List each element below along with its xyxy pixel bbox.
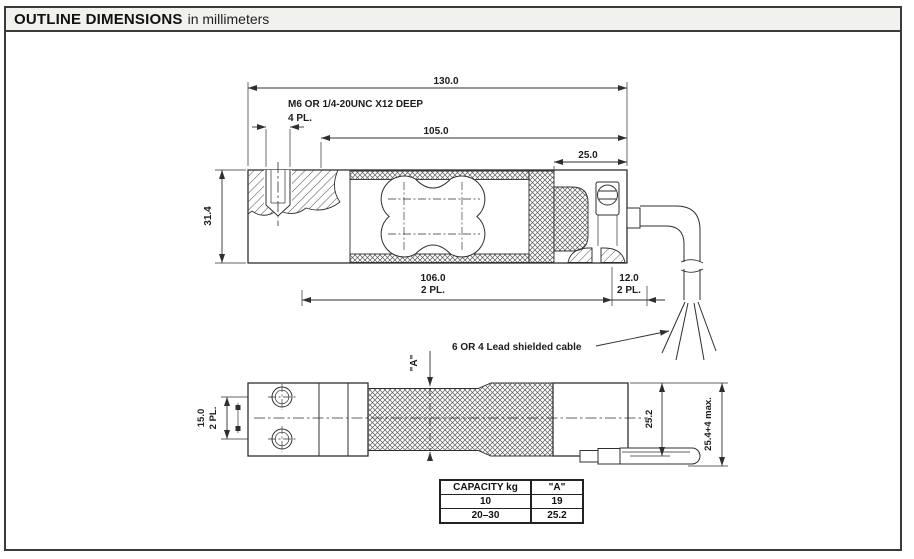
capacity-table: CAPACITY kg "A" 10 19 20–30 25.2 — [439, 479, 584, 524]
capacity-cell: 10 — [440, 495, 531, 509]
top-view: 130.0 M6 OR 1/4-20UNC X12 DEEP 4 PL. 105… — [203, 76, 716, 360]
dim-130-label: 130.0 — [433, 76, 458, 87]
a-cell: 19 — [531, 495, 583, 509]
dim-106-places: 2 PL. — [421, 285, 445, 296]
side-left-block — [248, 383, 368, 456]
dim-31-4-label: 31.4 — [203, 206, 214, 226]
dim-25-label: 25.0 — [578, 150, 598, 161]
dim-12-places: 2 PL. — [617, 285, 641, 296]
dim-105-label: 105.0 — [423, 126, 448, 137]
a-header: "A" — [531, 480, 583, 495]
dim-15-places: 2 PL. — [208, 407, 219, 430]
dim-12-label: 12.0 — [619, 273, 639, 284]
side-potted-section — [368, 383, 553, 456]
dim-106-label: 106.0 — [420, 273, 445, 284]
binocular-cutout — [381, 176, 485, 257]
dim-25-4-label: 25.4+4 max. — [703, 397, 714, 451]
dimension-106-and-12: 106.0 2 PL. 12.0 2 PL. — [302, 267, 665, 306]
dimension-25: 25.0 — [554, 150, 627, 171]
capacity-cell: 20–30 — [440, 509, 531, 524]
table-row: 10 19 — [440, 495, 583, 509]
thread-note-line1: M6 OR 1/4-20UNC X12 DEEP — [288, 99, 423, 110]
dim-a-label: "A" — [409, 354, 420, 371]
cable-note: 6 OR 4 Lead shielded cable — [452, 331, 669, 353]
table-header-row: CAPACITY kg "A" — [440, 480, 583, 495]
thread-note: M6 OR 1/4-20UNC X12 DEEP 4 PL. — [252, 99, 423, 167]
dim-15-label: 15.0 — [196, 409, 207, 428]
table-row: 20–30 25.2 — [440, 509, 583, 524]
left-section-hatch — [248, 170, 340, 215]
dimension-15: 15.0 2 PL. — [196, 397, 248, 439]
side-view: "A" 15.0 2 PL. 25.2 25.4 — [196, 351, 728, 466]
side-right-block — [553, 383, 628, 456]
cable-leads — [662, 302, 716, 360]
technical-drawing: 130.0 M6 OR 1/4-20UNC X12 DEEP 4 PL. 105… — [0, 0, 914, 559]
capacity-header: CAPACITY kg — [440, 480, 531, 495]
a-cell: 25.2 — [531, 509, 583, 524]
dim-25-2-label: 25.2 — [644, 410, 655, 429]
thread-note-line2: 4 PL. — [288, 113, 312, 124]
dimension-31-4: 31.4 — [203, 170, 246, 263]
cable-note-label: 6 OR 4 Lead shielded cable — [452, 342, 582, 353]
outline-dimensions-page: OUTLINE DIMENSIONS in millimeters — [0, 0, 914, 559]
